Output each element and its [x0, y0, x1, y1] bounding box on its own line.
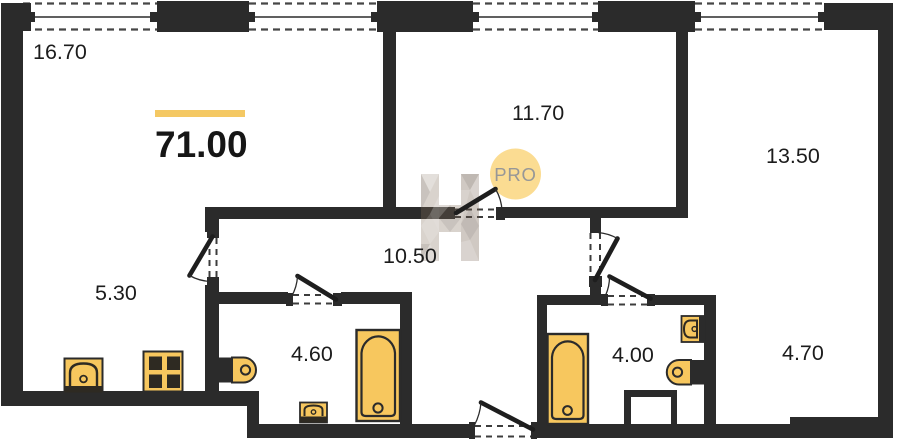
svg-text:11.70: 11.70	[512, 101, 564, 125]
svg-text:16.70: 16.70	[33, 40, 87, 64]
svg-text:4.00: 4.00	[612, 343, 654, 367]
svg-text:71.00: 71.00	[155, 124, 248, 165]
svg-text:13.50: 13.50	[766, 144, 820, 168]
svg-text:4.60: 4.60	[291, 342, 333, 366]
svg-text:PRO: PRO	[494, 164, 537, 185]
svg-text:5.30: 5.30	[95, 281, 137, 305]
svg-text:4.70: 4.70	[782, 341, 824, 365]
svg-text:10.50: 10.50	[383, 244, 437, 268]
